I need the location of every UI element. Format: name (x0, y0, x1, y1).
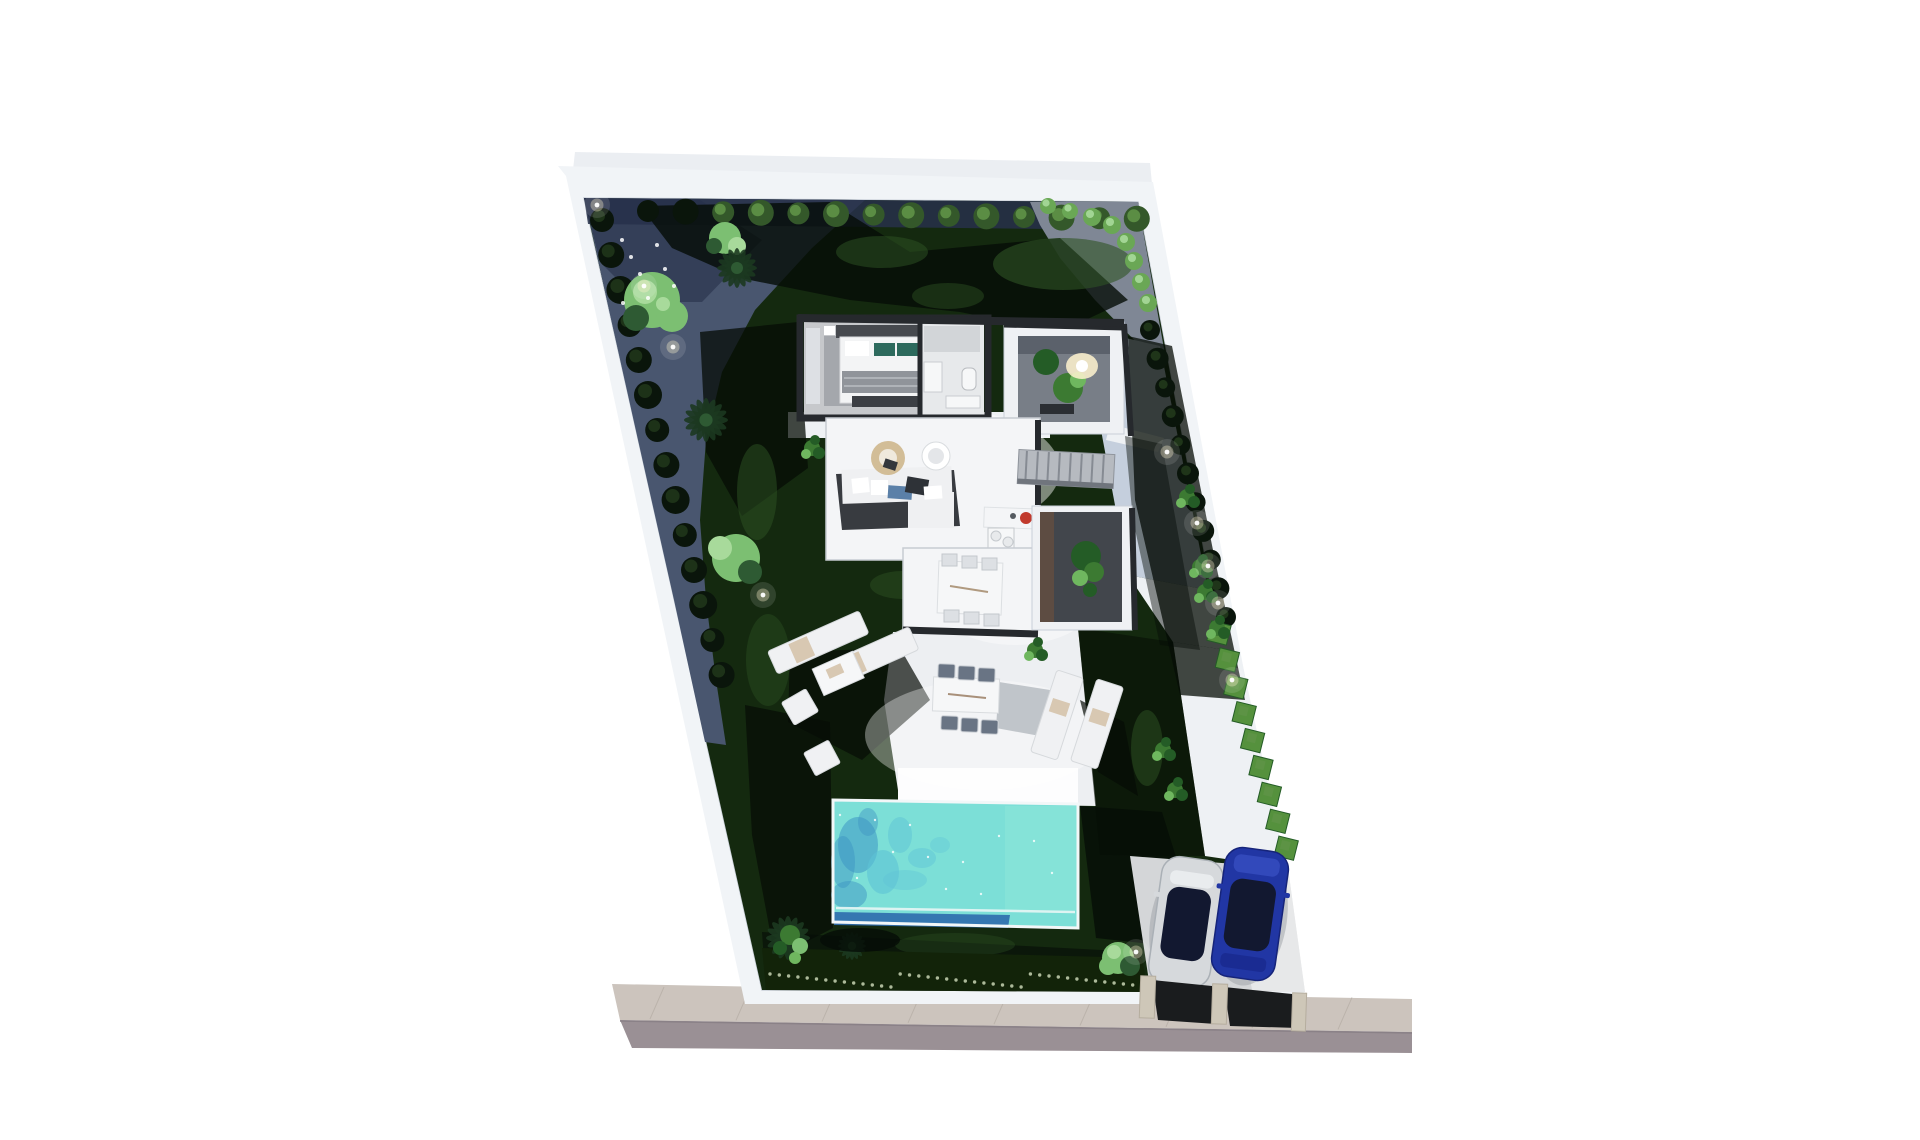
bush-highlight (1151, 351, 1161, 361)
hedge-speckle (1019, 985, 1022, 988)
pool-sparkle (874, 819, 876, 821)
plant (1203, 579, 1213, 589)
garden-light (595, 203, 600, 208)
hedge-speckle (768, 972, 771, 975)
car-glass (1222, 877, 1277, 953)
plant (1194, 593, 1204, 603)
hedge-speckle (796, 975, 799, 978)
pool-ripple (888, 817, 912, 853)
closet (806, 328, 820, 404)
garden-light (1165, 450, 1170, 455)
hedge-speckle (1057, 975, 1060, 978)
sofa-pillow (924, 485, 943, 499)
hedge-speckle (843, 980, 846, 983)
garden-light (1216, 601, 1221, 606)
pool-ripple (831, 881, 867, 909)
bath-shelf (924, 362, 942, 392)
kitchen-sink (991, 531, 1001, 541)
hedge-speckle (908, 973, 911, 976)
plant (1036, 649, 1048, 661)
outdoor-chair (961, 718, 978, 733)
bush-highlight (629, 350, 642, 363)
hedge-speckle (861, 982, 864, 985)
courtyard-plant (1083, 583, 1097, 597)
bush-highlight (940, 207, 951, 218)
dining-chair (964, 612, 979, 624)
living-room (826, 418, 1040, 560)
bush-highlight (657, 455, 670, 468)
sofa-pillow (851, 477, 869, 494)
flower-dot (655, 243, 659, 247)
bathroom (922, 322, 984, 416)
plant (801, 449, 811, 459)
hedge-speckle (889, 985, 892, 988)
plant (810, 435, 820, 445)
bush-highlight (1142, 296, 1150, 304)
garden-light (1206, 564, 1211, 569)
bush-highlight (1135, 275, 1143, 283)
hedge-speckle (1066, 976, 1069, 979)
hedge-speckle (1029, 972, 1032, 975)
bush-highlight (1106, 218, 1114, 226)
dining-chair (962, 556, 977, 568)
bush-highlight (1144, 323, 1153, 332)
pool-ripple (908, 848, 936, 868)
driveway-pillar (1139, 976, 1155, 1018)
plant (1188, 496, 1200, 508)
plant (789, 952, 801, 964)
hedge-speckle (815, 977, 818, 980)
hedge-speckle (1075, 977, 1078, 980)
hedge-speckle (1085, 978, 1088, 981)
hedge-speckle (964, 979, 967, 982)
courtyard-feature-wall (1018, 336, 1110, 354)
hedge-speckle (871, 983, 874, 986)
planter-box (1040, 404, 1074, 414)
parking (1130, 844, 1307, 1031)
plant (1152, 751, 1162, 761)
dining-south-wall (903, 630, 1038, 634)
plant (792, 938, 808, 954)
lawn-light-patch (912, 283, 984, 309)
pool-sparkle (927, 856, 929, 858)
plant (773, 941, 787, 955)
pool-sparkle (909, 824, 911, 826)
hedge-speckle (824, 978, 827, 981)
driveway-pillar (1291, 993, 1306, 1031)
outdoor-chair (941, 716, 958, 731)
hedge-speckle (852, 981, 855, 984)
hedge-speckle (982, 981, 985, 984)
hedge-speckle (1094, 979, 1097, 982)
armchair-seat (928, 448, 944, 464)
palm-crown (731, 262, 743, 274)
dining-chair (984, 614, 999, 626)
bed-pillow-teal (874, 343, 895, 356)
garden-light (1134, 950, 1139, 955)
kitchen-sink (1003, 537, 1013, 547)
hedge-speckle (1010, 984, 1013, 987)
flower-dot (629, 255, 633, 259)
bush-highlight (1064, 204, 1071, 211)
bush-highlight (1211, 580, 1221, 590)
outdoor-chair (958, 666, 975, 681)
bush-highlight (703, 630, 715, 642)
lawn-light-patch (993, 238, 1133, 290)
inner-courtyard-right-wall (1132, 508, 1135, 630)
hedge-speckle (1122, 982, 1125, 985)
hedge-speckle (899, 972, 902, 975)
coffee-machine (1020, 512, 1032, 524)
bush-highlight (666, 489, 680, 503)
bush-highlight (1127, 209, 1140, 222)
bush-highlight (602, 245, 615, 258)
bush-highlight (1159, 380, 1168, 389)
hedge-speckle (973, 980, 976, 983)
hedge-speckle (1103, 980, 1106, 983)
bed-pillow (845, 341, 869, 356)
bush-highlight (1016, 209, 1027, 220)
dining-chair (944, 610, 959, 622)
shower (924, 326, 980, 352)
bush-highlight (827, 205, 840, 218)
pool-sparkle (998, 835, 1000, 837)
bush-highlight (648, 420, 660, 432)
flower-dot (672, 284, 676, 288)
courtyard-light (1076, 360, 1088, 372)
plant (1161, 737, 1171, 747)
bush-highlight (712, 665, 725, 678)
plant (1033, 637, 1043, 647)
bush-highlight (610, 279, 624, 293)
outdoor-chair (938, 664, 955, 679)
pool-ripple (883, 870, 927, 890)
garden-light (1230, 678, 1235, 683)
pool-plant-shadow (820, 928, 900, 952)
bush-highlight (1128, 254, 1136, 262)
pool-sparkle (945, 888, 947, 890)
hedge-speckle (833, 979, 836, 982)
inner-courtyard (1032, 506, 1135, 630)
pool-sparkle (1033, 840, 1035, 842)
flower-dot (620, 238, 624, 242)
plant (1206, 629, 1216, 639)
bed-pillow-teal (897, 343, 918, 356)
bush-highlight (676, 525, 688, 537)
bush-highlight (1042, 199, 1049, 206)
hedge-speckle (1112, 981, 1115, 984)
bush-highlight (638, 384, 652, 398)
dining-room (903, 548, 1038, 634)
site-plan-rendering (0, 0, 1920, 1140)
pool-ripple (930, 837, 950, 853)
plant (1173, 777, 1183, 787)
outdoor-chair (978, 668, 995, 683)
hedge-speckle (1131, 983, 1134, 986)
hedge-speckle (1047, 974, 1050, 977)
hedge-speckle (787, 974, 790, 977)
bush (673, 199, 699, 225)
sofa-pillow (871, 480, 888, 495)
hedge-speckle (880, 984, 883, 987)
plant (1164, 791, 1174, 801)
toilet (962, 368, 976, 390)
pool-ripple (858, 808, 878, 836)
lawn-light-patch (836, 236, 928, 268)
hedge-speckle (778, 973, 781, 976)
kitchen-appliance (1010, 513, 1016, 519)
outdoor-chair (981, 720, 998, 735)
bath-sink (946, 396, 980, 408)
hedge-speckle (926, 975, 929, 978)
garden-light (671, 345, 676, 350)
pool-sparkle (839, 814, 841, 816)
hedge-speckle (954, 978, 957, 981)
driveway-pillar (1211, 984, 1227, 1024)
dining-chair (982, 558, 997, 570)
flower-dot (621, 301, 625, 305)
bush-highlight (790, 205, 801, 216)
plant (813, 447, 825, 459)
plant (1176, 498, 1186, 508)
bush-highlight (902, 206, 915, 219)
hedge-speckle (945, 977, 948, 980)
bush-highlight (1120, 235, 1128, 243)
flower-dot (663, 267, 667, 271)
palm-crown (699, 413, 712, 426)
garden-light (761, 593, 766, 598)
pool-sparkle (892, 851, 894, 853)
plant (1185, 484, 1195, 494)
pool-ripple (831, 836, 855, 888)
hedge-speckle (1038, 973, 1041, 976)
bush-highlight (1086, 210, 1094, 218)
nightstand (824, 326, 835, 335)
hedge-speckle (936, 976, 939, 979)
plant (1024, 651, 1034, 661)
staircase (1017, 450, 1115, 489)
garden-light (1195, 521, 1200, 526)
hedge-speckle (1001, 983, 1004, 986)
hedge-speckle (806, 976, 809, 979)
plant (1164, 749, 1176, 761)
pool-sparkle (980, 893, 982, 895)
site-plan-svg (0, 0, 1920, 1140)
plant (1218, 627, 1230, 639)
bush-highlight (693, 594, 707, 608)
dining-chair (942, 554, 957, 566)
pool-sparkle (1051, 872, 1053, 874)
plant (1176, 789, 1188, 801)
courtyard-plant (1072, 570, 1088, 586)
bush-highlight (977, 207, 990, 220)
pool-sparkle (962, 861, 964, 863)
pool-sparkle (856, 877, 858, 879)
pool-light-end (1005, 806, 1077, 910)
bush-highlight (1166, 408, 1176, 418)
bush-highlight (685, 560, 698, 573)
bush-highlight (751, 203, 764, 216)
bush-highlight (715, 204, 726, 215)
sideboard (1040, 512, 1054, 622)
driveway-strip (1152, 980, 1216, 1024)
bush (637, 200, 659, 222)
lawn-light-patch (737, 444, 777, 540)
bush-highlight (1181, 466, 1191, 476)
hedge-speckle (917, 974, 920, 977)
hedge-speckle (992, 982, 995, 985)
plant (1215, 615, 1225, 625)
courtyard-tree (1033, 349, 1059, 375)
house-north-wall (798, 318, 1124, 323)
garden-light (642, 284, 647, 289)
bush-highlight (865, 206, 876, 217)
